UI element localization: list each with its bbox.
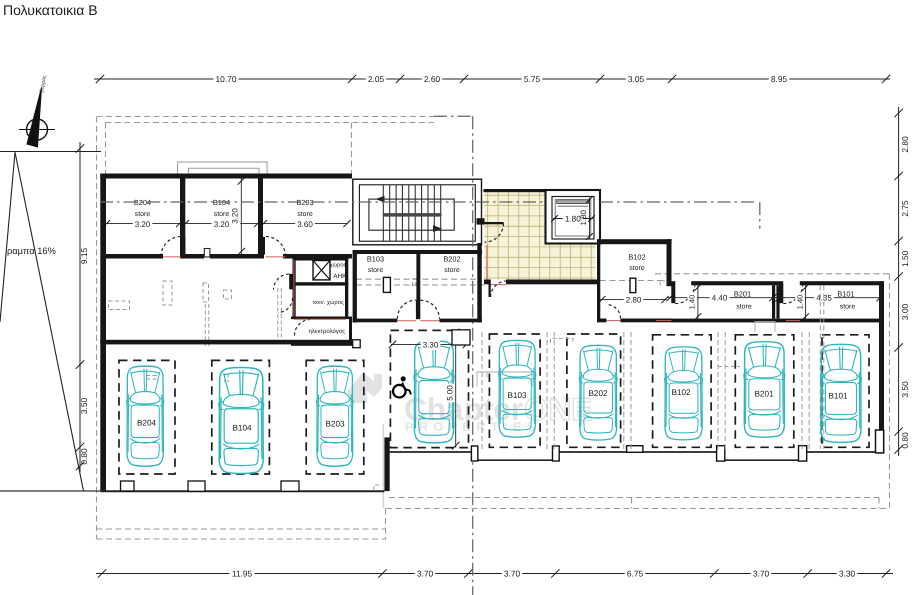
svg-text:1.40: 1.40: [795, 295, 804, 310]
svg-text:B102: B102: [671, 388, 691, 397]
svg-text:κοιν. χώρος: κοιν. χώρος: [313, 299, 344, 306]
svg-text:store: store: [135, 211, 151, 218]
svg-text:3.60: 3.60: [297, 220, 313, 229]
svg-text:B102: B102: [628, 253, 645, 262]
svg-text:3.20: 3.20: [214, 220, 230, 229]
svg-text:ηλεκτρολόγος: ηλεκτρολόγος: [309, 328, 346, 335]
svg-text:3.30: 3.30: [423, 341, 439, 350]
svg-text:B202: B202: [443, 255, 460, 264]
svg-text:B204: B204: [137, 419, 157, 428]
svg-text:5.00: 5.00: [445, 385, 454, 401]
svg-text:store: store: [214, 211, 230, 218]
svg-text:1.40: 1.40: [688, 295, 697, 310]
svg-text:3.20: 3.20: [231, 208, 240, 224]
svg-text:3.70: 3.70: [753, 569, 770, 579]
svg-text:0.80: 0.80: [79, 448, 89, 465]
svg-text:B104: B104: [232, 424, 252, 433]
svg-text:4.40: 4.40: [712, 294, 728, 303]
svg-text:B201: B201: [734, 290, 751, 299]
svg-text:B202: B202: [588, 389, 608, 398]
svg-text:2.75: 2.75: [900, 200, 910, 217]
svg-text:AHK: AHK: [333, 273, 347, 280]
svg-text:3.05: 3.05: [628, 74, 645, 84]
svg-text:B103: B103: [367, 255, 384, 264]
svg-text:3.20: 3.20: [135, 220, 151, 229]
svg-text:store: store: [444, 267, 460, 274]
svg-text:store: store: [736, 303, 752, 310]
svg-text:6.75: 6.75: [627, 569, 644, 579]
svg-text:store: store: [297, 211, 313, 218]
svg-text:9.15: 9.15: [79, 248, 89, 265]
svg-text:1.80: 1.80: [579, 210, 588, 226]
svg-text:1.50: 1.50: [900, 250, 910, 267]
svg-text:2.60: 2.60: [424, 74, 441, 84]
svg-text:3.70: 3.70: [504, 569, 521, 579]
svg-text:8.95: 8.95: [771, 74, 788, 84]
svg-text:3.50: 3.50: [79, 398, 89, 415]
svg-text:B203: B203: [325, 420, 345, 429]
svg-text:B201: B201: [754, 390, 774, 399]
svg-text:11.95: 11.95: [232, 569, 253, 579]
svg-text:store: store: [629, 265, 645, 272]
svg-text:5.75: 5.75: [524, 74, 541, 84]
svg-text:3.50: 3.50: [900, 381, 910, 398]
svg-text:2.80: 2.80: [626, 296, 642, 305]
svg-text:store: store: [368, 267, 384, 274]
svg-text:2.80: 2.80: [900, 136, 910, 153]
svg-text:10.70: 10.70: [216, 74, 237, 84]
svg-text:3.70: 3.70: [417, 569, 434, 579]
svg-text:ραμπα 16%: ραμπα 16%: [7, 246, 56, 256]
svg-text:3.30: 3.30: [839, 569, 856, 579]
svg-text:B103: B103: [507, 391, 527, 400]
svg-text:Πολυκατοικια Β: Πολυκατοικια Β: [3, 2, 98, 18]
svg-text:0.80: 0.80: [900, 432, 910, 449]
svg-text:B101: B101: [837, 290, 854, 299]
svg-text:3.00: 3.00: [900, 304, 910, 321]
svg-text:store: store: [840, 303, 856, 310]
svg-text:B101: B101: [828, 392, 848, 401]
svg-text:χώρος: χώρος: [330, 262, 347, 269]
svg-text:2.05: 2.05: [368, 74, 385, 84]
